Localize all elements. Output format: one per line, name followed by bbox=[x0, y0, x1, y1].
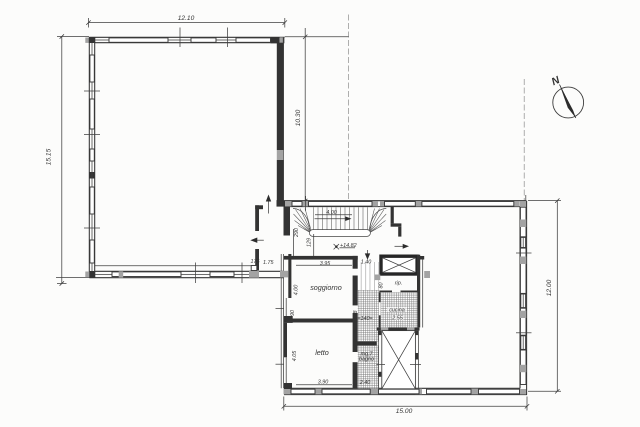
svg-text:12.10: 12.10 bbox=[178, 15, 195, 22]
svg-text:4.05: 4.05 bbox=[292, 350, 298, 361]
svg-text:18: 18 bbox=[353, 311, 359, 317]
svg-text:2.55: 2.55 bbox=[391, 315, 403, 321]
svg-text:2.40: 2.40 bbox=[359, 380, 371, 386]
svg-text:3.95: 3.95 bbox=[320, 261, 331, 267]
svg-text:4.00: 4.00 bbox=[293, 285, 299, 296]
svg-text:cucina: cucina bbox=[389, 307, 405, 313]
svg-text:rip.: rip. bbox=[395, 280, 403, 286]
svg-text:bagno: bagno bbox=[359, 357, 374, 363]
svg-text:letto: letto bbox=[315, 348, 329, 357]
svg-text:15.15: 15.15 bbox=[46, 148, 53, 165]
svg-text:10.30: 10.30 bbox=[295, 109, 302, 126]
svg-text:80: 80 bbox=[379, 283, 385, 289]
svg-text:soggiorno: soggiorno bbox=[310, 283, 342, 292]
svg-text:175: 175 bbox=[251, 259, 261, 265]
svg-text:90: 90 bbox=[290, 310, 296, 316]
svg-text:15.00: 15.00 bbox=[396, 408, 413, 415]
svg-text:290: 290 bbox=[294, 228, 300, 238]
svg-text:1.75: 1.75 bbox=[263, 260, 274, 266]
svg-text:=140=: =140= bbox=[357, 316, 372, 322]
svg-text:129: 129 bbox=[307, 238, 313, 247]
svg-text:1.40: 1.40 bbox=[361, 260, 372, 266]
svg-text:12.00: 12.00 bbox=[546, 279, 553, 296]
